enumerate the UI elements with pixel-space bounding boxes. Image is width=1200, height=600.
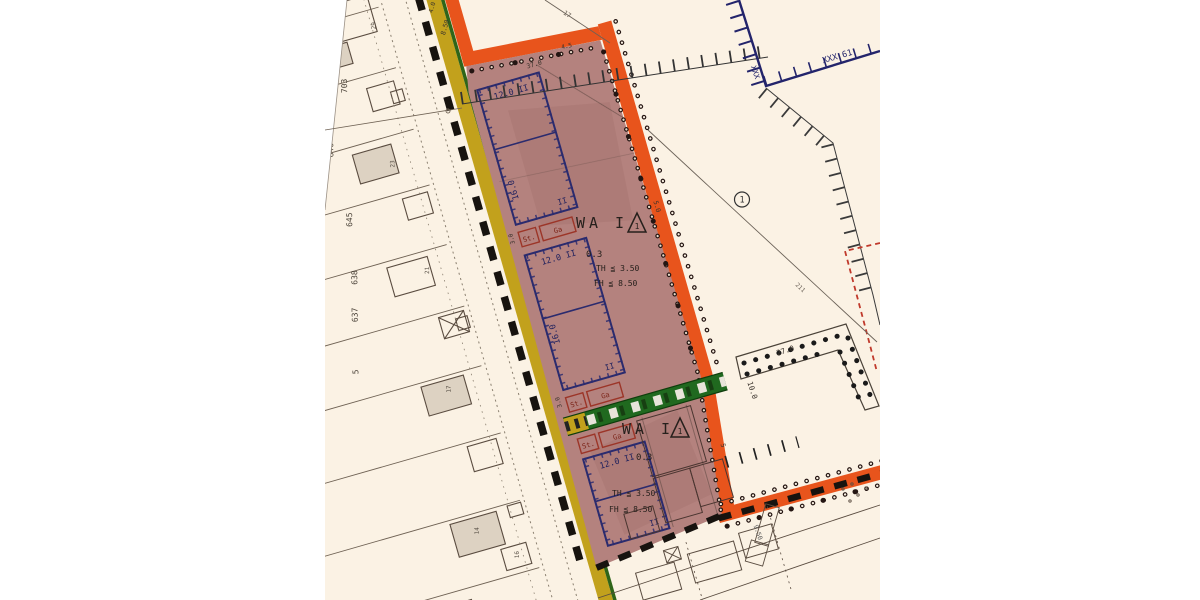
zoning-plan-scan: 703 646 645 638 637 5 29 23 21 17 14 16 <box>0 0 1200 600</box>
zone-ratio: 0.3 <box>636 453 652 463</box>
house-number: 23 <box>389 160 396 168</box>
zone-fh: FH ≦ 8.50 <box>594 279 638 288</box>
plan-map: 703 646 645 638 637 5 29 23 21 17 14 16 <box>0 0 1200 600</box>
parcel-number: 5 <box>351 369 360 374</box>
zone-ratio: 0.3 <box>586 250 602 260</box>
zone-name: WA I <box>622 420 674 438</box>
parcel-number: 703 <box>340 78 349 93</box>
zone-th: TH ≦ 3.50 <box>612 489 656 498</box>
parcel-number: 638 <box>350 270 359 285</box>
triangle-mark-number: 1 <box>678 427 683 436</box>
circled-marker-number: 1 <box>739 196 744 206</box>
house-number: 14 <box>474 527 481 535</box>
zone-th: TH ≦ 3.50 <box>596 264 640 273</box>
zone-name: WA I <box>576 214 628 232</box>
parcel-number: 637 <box>350 307 359 322</box>
house-number: 29 <box>370 22 377 30</box>
triangle-mark-number: 1 <box>635 222 640 231</box>
parcel-number: 645 <box>345 212 354 227</box>
house-number: 21 <box>424 266 431 274</box>
house-number: 16 <box>514 551 521 559</box>
zone-fh: FH ≦ 8.50 <box>609 505 653 514</box>
house-number: 17 <box>446 385 453 393</box>
